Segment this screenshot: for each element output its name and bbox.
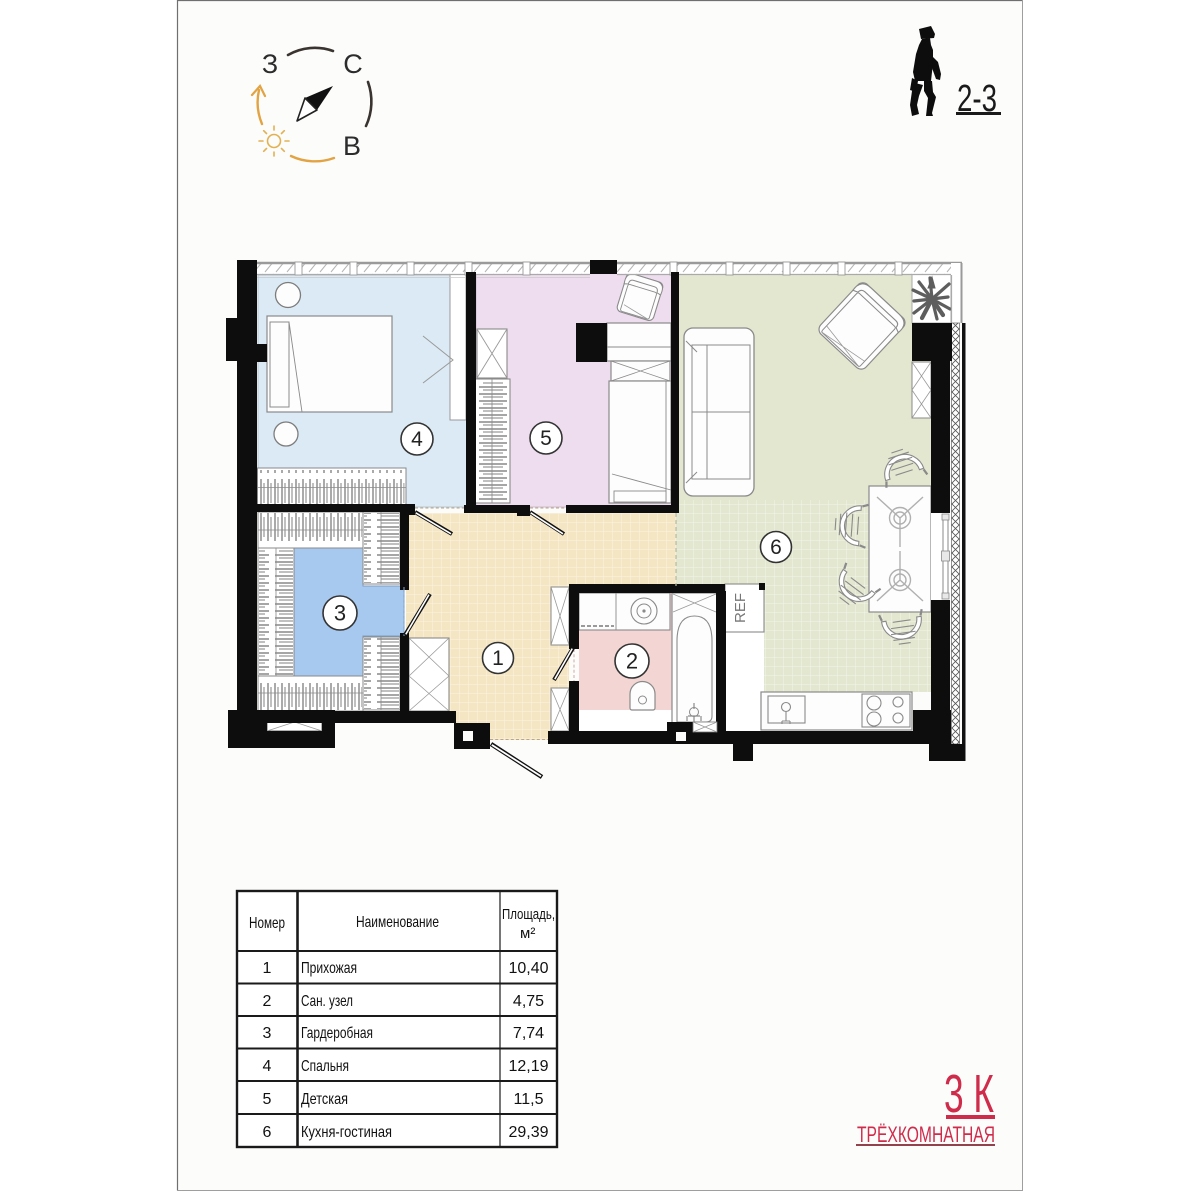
svg-text:29,39: 29,39: [508, 1124, 548, 1141]
svg-text:Площадь,: Площадь,: [502, 906, 555, 923]
svg-text:REF: REF: [732, 593, 749, 623]
svg-text:Кухня-гостиная: Кухня-гостиная: [301, 1124, 392, 1141]
svg-text:6: 6: [770, 536, 782, 559]
svg-text:ТРЁХКОМНАТНАЯ: ТРЁХКОМНАТНАЯ: [857, 1122, 995, 1147]
svg-text:11,5: 11,5: [514, 1091, 544, 1108]
svg-text:3: 3: [263, 1025, 272, 1042]
svg-text:1: 1: [492, 647, 504, 670]
svg-text:10,40: 10,40: [508, 960, 548, 977]
svg-text:В: В: [343, 131, 361, 161]
svg-text:Наименование: Наименование: [356, 914, 439, 931]
svg-text:Детская: Детская: [301, 1091, 348, 1108]
svg-text:7,74: 7,74: [513, 1025, 544, 1042]
svg-text:С: С: [343, 49, 363, 79]
svg-text:4: 4: [411, 428, 423, 451]
svg-text:2: 2: [626, 649, 638, 674]
svg-text:Прихожая: Прихожая: [301, 960, 357, 977]
svg-text:2: 2: [263, 993, 272, 1010]
svg-text:Номер: Номер: [249, 915, 285, 932]
svg-text:1: 1: [263, 960, 272, 977]
svg-text:5: 5: [540, 427, 552, 450]
svg-text:З: З: [262, 49, 278, 79]
svg-text:6: 6: [263, 1124, 272, 1141]
svg-text:Спальня: Спальня: [301, 1058, 349, 1075]
svg-text:м²: м²: [520, 925, 535, 942]
svg-text:Сан. узел: Сан. узел: [301, 993, 353, 1010]
svg-text:4: 4: [263, 1058, 272, 1075]
svg-text:Гардеробная: Гардеробная: [301, 1025, 373, 1042]
svg-text:4,75: 4,75: [513, 993, 544, 1010]
svg-text:5: 5: [263, 1091, 272, 1108]
svg-text:3: 3: [334, 601, 346, 626]
svg-text:12,19: 12,19: [508, 1058, 548, 1075]
